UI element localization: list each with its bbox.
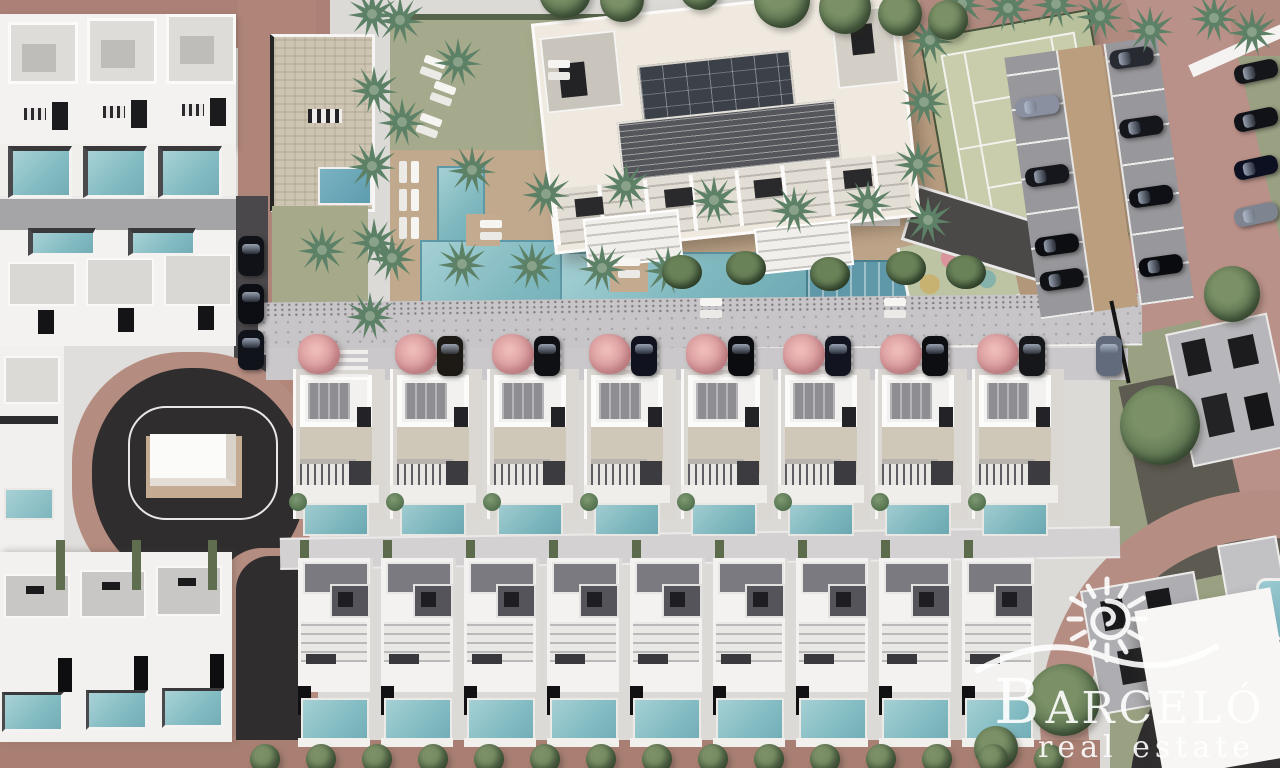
garage-door bbox=[118, 308, 134, 332]
play-circle-teal bbox=[976, 269, 997, 290]
barcelo-logo: BARCELÓ real estate bbox=[950, 573, 1280, 768]
private-pool bbox=[885, 503, 951, 536]
palm-tree bbox=[348, 0, 396, 38]
roof-terrace bbox=[405, 383, 447, 419]
private-pool bbox=[691, 503, 757, 536]
window-bar bbox=[638, 654, 668, 664]
garage-door bbox=[210, 98, 226, 126]
window-bar bbox=[389, 654, 419, 664]
townhouse-unit bbox=[464, 558, 543, 750]
townhouse-unit bbox=[681, 369, 774, 532]
private-pool bbox=[633, 698, 701, 740]
road-tail-asphalt bbox=[236, 556, 306, 768]
villa-pool bbox=[83, 146, 147, 198]
pool-pillar bbox=[210, 654, 224, 688]
private-pool bbox=[550, 698, 618, 740]
private-pool bbox=[400, 503, 466, 536]
townhouse-unit bbox=[298, 558, 377, 750]
sun-spiral bbox=[1093, 601, 1128, 638]
villas-upper-left-row1 bbox=[0, 14, 236, 148]
hedge-strip bbox=[56, 540, 65, 590]
garage-door bbox=[131, 100, 147, 128]
pool-deck bbox=[796, 738, 868, 747]
center-building bbox=[150, 434, 236, 486]
private-pool bbox=[497, 503, 563, 536]
roof-terrace bbox=[793, 383, 835, 419]
brand-tagline: real estate bbox=[1038, 730, 1255, 765]
window-bar bbox=[887, 654, 917, 664]
window-bar bbox=[472, 654, 502, 664]
site-plan-render: BARCELÓ real estate bbox=[0, 0, 1280, 768]
villa-pool bbox=[86, 690, 148, 730]
townhouse-unit bbox=[390, 369, 483, 532]
pool-island bbox=[466, 214, 500, 246]
roof-terrace bbox=[599, 383, 641, 419]
townhouse-unit bbox=[293, 369, 386, 532]
townhouse-unit bbox=[796, 558, 875, 750]
garden-bush bbox=[386, 493, 404, 511]
plot-terrace-topdown bbox=[270, 34, 375, 212]
villa-pool bbox=[162, 688, 224, 728]
hedge-strip bbox=[132, 540, 141, 590]
skylight-dark bbox=[670, 592, 685, 607]
balcony bbox=[882, 459, 938, 486]
plot-pool bbox=[318, 167, 372, 205]
apartment-terrace-annex bbox=[583, 209, 684, 269]
parked-car bbox=[1128, 184, 1174, 209]
private-pool bbox=[882, 698, 950, 740]
private-pool bbox=[799, 698, 867, 740]
pool-deck bbox=[630, 738, 702, 747]
balcony bbox=[688, 459, 744, 486]
private-pool bbox=[788, 503, 854, 536]
balcony bbox=[785, 459, 841, 486]
window-bar bbox=[555, 654, 585, 664]
window-bar bbox=[721, 654, 751, 664]
balcony bbox=[979, 459, 1035, 486]
garden-bush bbox=[871, 493, 889, 511]
roof-terrace bbox=[502, 383, 544, 419]
townhouse-unit bbox=[630, 558, 709, 750]
garden-bush bbox=[289, 493, 307, 511]
villa-pool bbox=[8, 146, 72, 198]
garage-door bbox=[38, 310, 54, 334]
townhouse-unit bbox=[879, 558, 958, 750]
promenade bbox=[258, 293, 1142, 354]
roof-terrace bbox=[987, 383, 1029, 419]
private-pool bbox=[982, 503, 1048, 536]
window-bar bbox=[804, 654, 834, 664]
private-pool bbox=[594, 503, 660, 536]
private-pool bbox=[301, 698, 369, 740]
pool-deck bbox=[381, 738, 453, 747]
private-pool bbox=[384, 698, 452, 740]
villa-pool bbox=[2, 692, 64, 732]
private-pool bbox=[4, 488, 54, 520]
pool-deck bbox=[547, 738, 619, 747]
skylight-dark bbox=[753, 592, 768, 607]
townhouse-unit bbox=[547, 558, 626, 750]
garage-door bbox=[198, 306, 214, 330]
balcony bbox=[494, 459, 550, 486]
townhouse-unit bbox=[487, 369, 580, 532]
roof-terrace-dark bbox=[558, 62, 587, 99]
garden-bush bbox=[677, 493, 695, 511]
villa-left-mid bbox=[0, 346, 64, 552]
villa-pool bbox=[128, 228, 196, 256]
parked-car bbox=[1108, 45, 1154, 70]
garden-bush bbox=[774, 493, 792, 511]
skylight-dark bbox=[504, 592, 519, 607]
villa-pool bbox=[158, 146, 222, 198]
pool-pillar bbox=[134, 656, 148, 690]
balcony bbox=[300, 459, 356, 486]
villa-pool bbox=[28, 228, 96, 256]
roof-terrace bbox=[696, 383, 738, 419]
parked-car bbox=[1039, 267, 1085, 292]
balcony bbox=[591, 459, 647, 486]
private-pool bbox=[303, 503, 369, 536]
pool-deck bbox=[713, 738, 785, 747]
townhouse-unit bbox=[778, 369, 871, 532]
pool-pillar bbox=[58, 658, 72, 692]
parked-car bbox=[1138, 253, 1184, 278]
townhouse-unit bbox=[584, 369, 677, 532]
parked-car bbox=[1024, 163, 1070, 188]
roof-terrace bbox=[308, 383, 350, 419]
skylight-dark bbox=[587, 592, 602, 607]
townhouse-unit bbox=[713, 558, 792, 750]
street-vertical-left bbox=[234, 196, 268, 386]
private-pool bbox=[467, 698, 535, 740]
pool-deck bbox=[298, 738, 370, 747]
skylight-dark bbox=[338, 592, 353, 607]
parked-car bbox=[1034, 232, 1080, 257]
parked-car bbox=[1118, 115, 1164, 140]
pool-deck bbox=[464, 738, 536, 747]
townhouse-unit bbox=[381, 558, 460, 750]
skylight-dark bbox=[421, 592, 436, 607]
townhouse-unit bbox=[875, 369, 968, 532]
garden-bush bbox=[968, 493, 986, 511]
window-bar bbox=[306, 654, 336, 664]
private-pool bbox=[716, 698, 784, 740]
play-circle-yellow bbox=[918, 272, 942, 296]
garage-door bbox=[52, 102, 68, 130]
balcony bbox=[397, 459, 453, 486]
garden-bush bbox=[580, 493, 598, 511]
garden-bush bbox=[483, 493, 501, 511]
hedge-strip bbox=[208, 540, 217, 590]
parked-car bbox=[1014, 94, 1060, 119]
brand-wordmark: BARCELÓ bbox=[994, 665, 1266, 738]
skylight-dark bbox=[836, 592, 851, 607]
pool-deck bbox=[879, 738, 951, 747]
skylight-dark bbox=[919, 592, 934, 607]
roof-terrace bbox=[890, 383, 932, 419]
apartment-building bbox=[531, 0, 921, 255]
townhouse-unit bbox=[972, 369, 1065, 532]
